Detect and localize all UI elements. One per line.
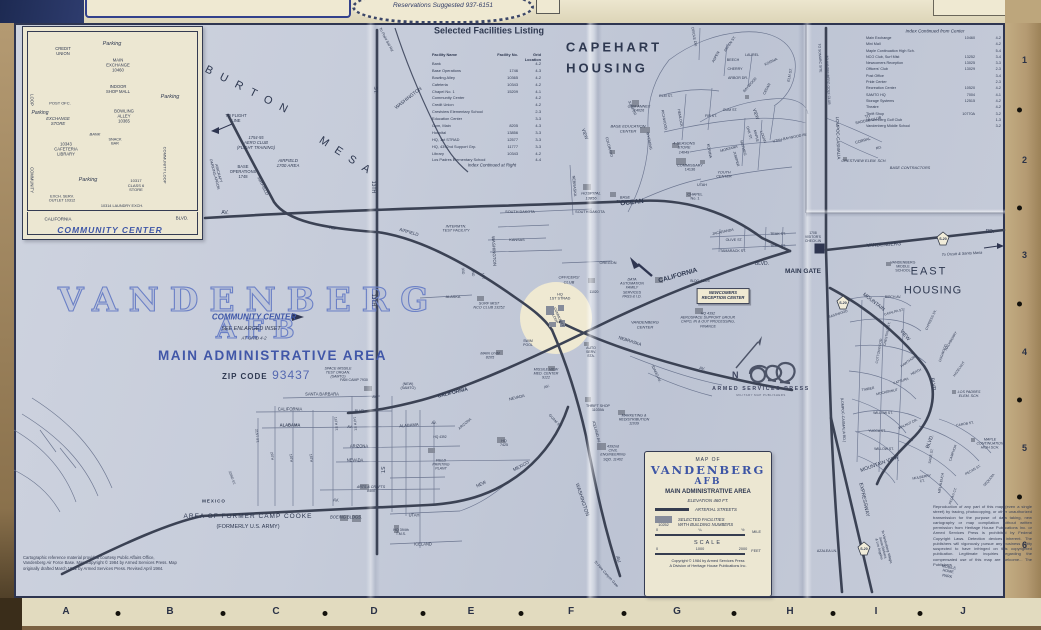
community-center-callout: COMMUNITY CENTER: [212, 312, 296, 321]
colorado: COLORADO: [604, 137, 613, 158]
intermtn: INTERMTN. TEST FACILITY: [442, 225, 469, 234]
airfield-rd-2: RD.: [329, 225, 337, 232]
main-gym: MAIN GYM 8205: [480, 352, 499, 361]
yucca-st: YUCCA ST.: [868, 429, 886, 433]
lompoc-casmalia-n: LOMPOC-CASMALIA: [835, 117, 842, 160]
mexico-av: MEXICO: [202, 498, 226, 503]
grid-dot: [622, 611, 627, 616]
grid-number-4: 4: [1022, 347, 1027, 357]
teak-st-1: TEAK ST.: [770, 232, 786, 236]
gum-st: GUM ST.: [723, 108, 738, 112]
nevada-st: NEVADA: [347, 459, 364, 464]
olive-st: OLIVE ST.: [726, 238, 743, 242]
grid-number-6: 6: [1022, 540, 1027, 550]
basswood: BASSWOOD: [828, 309, 848, 319]
alabama-av: ALABAMA: [280, 424, 301, 429]
16th-st: 16TH ST.: [333, 417, 338, 431]
cypress: CYPRESS ST.: [925, 309, 938, 331]
washington-av-mid: WASHINGTON: [491, 236, 498, 266]
hawthorn: HAWTHORN: [900, 354, 919, 369]
katsura: KATSURA: [893, 377, 909, 386]
inset-parking-top: Parking: [103, 41, 122, 47]
alabama-av2: AV.: [347, 425, 353, 429]
to-flight-line: TO FLIGHT LINE: [225, 114, 246, 124]
aero-club: 1754-55 AERO CLUB (FLIGHT TRAINING): [237, 136, 275, 150]
new-mexico-2: MEXICO: [512, 460, 530, 473]
gym-annex: GYM ANNEX 14026: [628, 105, 651, 114]
aircraft-apron: AIRCRAFT PARKING APRON: [208, 158, 225, 190]
grid-number-3: 3: [1022, 250, 1027, 260]
base-education: BASE EDUCATION CENTER: [610, 124, 645, 133]
s20-shield-3: S-20: [860, 547, 868, 551]
grid-letter-C: C: [272, 606, 279, 617]
nevada-av-up2: AV.: [544, 384, 551, 390]
vandenberg-rd: VANDENBERG: [867, 242, 902, 250]
crestview: CRESTVIEW ELEM. SCH.: [841, 159, 886, 163]
to-golf-club: TO VANDENBERG GOLF CLUB: [825, 55, 832, 104]
hq-4392-small: HQ 4392: [433, 436, 446, 440]
map-label-layer: CREDIT UNIONParkingMAIN EXCHANGE 10460IN…: [0, 0, 1041, 630]
california-blvd-label: BLVD.: [755, 262, 769, 268]
grid-letter-G: G: [673, 606, 681, 617]
grid-dot: [1017, 302, 1022, 307]
hq-1st-strad: HQ 1ST STRAD: [550, 293, 571, 302]
jacaranda: JACARANDA: [712, 228, 734, 237]
auto-serv: AUTO SERV. STA.: [586, 346, 596, 358]
oregon: OREGON: [600, 261, 617, 265]
nutmeg: NUTMEG: [739, 140, 747, 156]
teak-st-2: TEAK ST.: [770, 244, 786, 248]
facilities-note: Index Continued at Right: [468, 162, 516, 167]
nebraska-av-2: AV.: [699, 366, 706, 372]
expressway: EXPRESSWAY: [857, 483, 870, 518]
lompoc-casmalia-mid: (LOMPOC-CASMALIA RD.): [840, 398, 847, 443]
3rd-st: 3RD: [461, 267, 466, 274]
walnut-dr: WALNUT DR.: [898, 418, 919, 430]
grid-letter-I: I: [875, 606, 878, 617]
timber: TIMBER: [861, 386, 874, 392]
base-theatre: BASE THEATRE: [616, 196, 633, 205]
grid-letter-B: B: [166, 606, 173, 617]
aerospace-group: HQ 4392 AEROSPACE SUPPORT GROUP, CHPO, I…: [680, 312, 735, 329]
inset-indoor-mall: INDOOR SHOP MALL: [106, 85, 130, 95]
south-dakota-2: SOUTH DAKOTA: [575, 210, 605, 214]
hq-7425: HQ 7425: [500, 439, 508, 447]
corral-rd2: RD.: [875, 145, 882, 151]
willow-st-2: WILLOW ST.: [874, 447, 894, 451]
grid-letter-F: F: [568, 606, 574, 617]
officers-club: OFFICERS' CLUB: [559, 275, 580, 284]
hemlock: HEMLOCK: [676, 109, 683, 127]
alabama-e: ALABAMA: [399, 423, 419, 429]
utah-s: UTAH: [409, 514, 420, 519]
circle-dr: CIRCLE DR.: [690, 27, 698, 48]
cedar: CEDAR: [762, 82, 772, 95]
23rd-st: 23RD ST.: [228, 470, 237, 485]
commissary: COMMISSARY 14136: [677, 164, 703, 173]
inset-community: COMMUNITY: [29, 167, 34, 193]
camp-cooke-1: AREA OF FORMER CAMP COOKE: [184, 513, 313, 521]
21st-st: 21ST ST.: [254, 429, 259, 443]
community-loop-circle: COMMUNITY LOOP: [549, 307, 565, 329]
grid-dot: [732, 611, 737, 616]
cherry: CHERRY: [727, 67, 742, 71]
willow-st-1: WILLOW ST.: [873, 411, 893, 415]
kansas: KANSAS: [509, 238, 524, 242]
oak-st: OAK ST.: [745, 126, 753, 140]
civil-engineering: 4392nd CIVIL ENGINEERING SQD. 11402: [600, 445, 625, 462]
grid-dot: [116, 611, 121, 616]
19th-st: 19TH: [289, 454, 294, 463]
1st-st: 1ST: [481, 273, 486, 280]
fir-st: FIR ST.: [705, 114, 717, 118]
inset-loop: LOOP: [29, 94, 34, 106]
grid-dot: [323, 611, 328, 616]
vandenberg-center: VANDENBERG CENTER: [631, 320, 659, 329]
east-housing-2: HOUSING: [904, 285, 962, 298]
camp-cooke-2: (FORMERLY U.S. ARMY): [216, 524, 279, 530]
sage-st: SAGE ST.: [928, 448, 935, 464]
birch-av: BIRCH AV.: [885, 295, 901, 299]
inset-community-loop: COMMUNITY LOOP: [162, 147, 167, 184]
2nd-st: 2ND: [471, 269, 476, 276]
grid-dot: [519, 611, 524, 616]
nebraska-vert: NEBRASKA: [571, 176, 577, 197]
carob-st: CAROB ST.: [956, 420, 974, 427]
grid-number-5: 5: [1022, 443, 1027, 453]
18th-st: 18TH: [309, 454, 314, 463]
visitors-checkin: 1708 VISITOR'S CHECK-IN: [805, 232, 821, 244]
inset-bank: BANK: [90, 133, 101, 138]
at-grid: AT GRID 4-2: [241, 335, 266, 340]
inset-blvd: BLVD.: [176, 215, 189, 220]
iceland-s: ICELAND: [414, 543, 432, 548]
inset-snack-bar: SNACK BAR: [108, 138, 121, 147]
grid-dot: [1017, 495, 1022, 500]
dogwood: DOGWOOD: [938, 344, 948, 363]
heath: HEATH: [910, 368, 922, 376]
california-st: CALIFORNIA: [278, 408, 303, 413]
thirteenth-st-2: 13TH: [369, 294, 375, 306]
14th-st: 14TH ST.: [352, 417, 357, 431]
inset-post-office: POST OFC.: [49, 102, 70, 107]
mexico-av2: AV.: [333, 497, 339, 502]
swim-pool: SWIM POOL: [523, 339, 533, 347]
richwood: RICHWOOD: [660, 110, 668, 131]
map-photo: Reservations Suggested 937-6151: [0, 0, 1041, 630]
capehart-2: HOUSING: [566, 60, 648, 75]
see-inset: SEE ENLARGED INSET: [221, 326, 280, 332]
burton: BURTON: [202, 64, 297, 121]
nebraska-av: NEBRASKA: [618, 335, 642, 347]
alabama-e2: AV.: [431, 421, 436, 425]
tamarack-st: TAMARACK ST.: [720, 249, 746, 253]
thrift-shop: THRIFT SHOP 11039A: [586, 404, 610, 412]
samto-hq: SPACE MISSILE TEST ORGAN. (SAMTO): [324, 367, 351, 380]
los-padres: LOS PADRES ELEM. SCH.: [958, 390, 981, 398]
chapel-no1: CHAPEL No. 1: [687, 193, 702, 202]
california-sw: CALIFORNIA: [437, 387, 468, 400]
elm-st-1: ELM ST.: [787, 68, 794, 82]
pecan-st: PECAN ST.: [964, 464, 981, 476]
inset-exchange-store: EXCHANGE STORE: [46, 117, 70, 127]
data-automation: DATA AUTOMATION FAMILY SERVICES PASS & I…: [620, 277, 644, 298]
melaleuca: MELALEUCA: [937, 473, 945, 494]
capehart-1: CAPEHART: [566, 39, 662, 54]
st-label: ST.: [371, 86, 377, 93]
pecan-ct: PECAN CT.: [948, 487, 958, 505]
maple-high: MAPLE CONTINUATION HIGH SCH.: [976, 438, 1003, 451]
grid-dot: [221, 611, 226, 616]
grid-dot: [1017, 206, 1022, 211]
logan: LOGAN: [759, 130, 767, 143]
airfield-area: AIRFIELD 1700 AREA: [277, 158, 300, 168]
mockernut: MOCKERNUT: [876, 388, 898, 396]
inset-credit-union: CREDIT UNION: [55, 47, 71, 57]
south-dakota-1: SOUTH DAKOTA: [505, 210, 535, 214]
mountain-view-s2: BLVD.: [926, 434, 936, 449]
grid-number-2: 2: [1022, 155, 1027, 165]
grid-dot: [918, 611, 923, 616]
13th-st-s: ST.: [378, 466, 384, 473]
utah-st: UTAH: [697, 183, 707, 187]
arbor-dr: ARBOR DR.: [728, 76, 748, 80]
hazelnut: HAZELNUT: [952, 361, 966, 378]
arts-crafts: ARTS & CRAFTS 8400: [357, 485, 385, 493]
to-vdb-village: To Vandenberg Village, Santa Barbara, & …: [873, 530, 894, 567]
inset-exch-outlet: EXCH. SERV. OUTLET 10312: [49, 195, 76, 204]
arizona-e: ARIZONA: [458, 417, 473, 431]
20th-st: 20TH: [270, 452, 275, 461]
mountain-view-2: VIEW: [898, 329, 911, 343]
korina-2: KORINA: [706, 143, 713, 158]
hospital: HOSPITAL 13856: [581, 191, 601, 200]
to-orcutt: To Orcutt & Santa Maria: [942, 251, 983, 258]
bldg-11020: 11020: [590, 291, 599, 295]
korina-1: KORINA: [764, 57, 778, 67]
california-blvd2: BLVD.: [355, 409, 366, 413]
elm-st-2: ELM ST.: [659, 94, 673, 98]
inset-california: CALIFORNIA: [44, 216, 71, 221]
wyoming: WYOMING: [645, 132, 653, 150]
mountain-view-1: MOUNTAIN: [861, 293, 885, 314]
idaho-av: IDAHO AV.: [650, 365, 662, 384]
surf-mist: SURF MIST NCO CLUB 13252: [473, 302, 504, 311]
grid-letter-J: J: [960, 606, 966, 617]
missile-view-med: MISSILE VIEW MED. CENTER 9122: [534, 368, 559, 381]
grid-letter-H: H: [786, 606, 793, 617]
santa-barbara-av: SANTA BARBARA: [305, 393, 339, 398]
grid-number-1: 1: [1022, 55, 1027, 65]
ocean-av-w: AV.: [221, 211, 228, 217]
field-printing: FIELD PRINTING PLANT: [432, 459, 449, 472]
mountain-view-3: BLVD.: [928, 378, 936, 393]
chestnut: CHESTNUT ST.: [883, 322, 892, 347]
juniper-2: JUNIPER: [732, 151, 740, 167]
inset-cafeteria: 10343 CAFETERIA LIBRARY: [54, 143, 78, 158]
grid-dot: [1017, 108, 1022, 113]
aspen: ASPEN: [711, 51, 720, 64]
base-operations: BASE OPERATIONS 1748: [230, 165, 257, 179]
washington-st-top: WASHINGTON: [394, 87, 423, 112]
inset-laundry: 10314 LAUNDRY EXCH.: [101, 204, 143, 208]
to-point-sal: To Point Sal Rd.: [378, 27, 395, 53]
to-somarc: TO SOMARC SITE: [817, 43, 823, 72]
arizona-st: ARIZONA: [350, 445, 368, 450]
laurel: LAUREL: [745, 53, 759, 57]
alaska: ALASKA: [446, 295, 461, 299]
view-2: VIEW: [581, 128, 590, 140]
thirteenth-st: 13TH: [369, 181, 375, 193]
camphor: CAMPHOR: [948, 444, 958, 462]
inset-main-exchange: MAIN EXCHANGE 10460: [106, 59, 130, 74]
beech: BEECH: [727, 58, 739, 62]
east-housing-1: EAST: [911, 266, 948, 279]
four-seasons: 4-SEASONS STORE 14049: [673, 141, 695, 154]
mulberry: MULBERRY CT.: [912, 473, 932, 484]
nevada-av-up: NEVADA: [509, 394, 526, 402]
iceland-av: ICELAND AV.: [591, 420, 601, 443]
mobile-home-park: MOBILE HOME PARK: [940, 564, 956, 580]
aspen-st: ASPEN ST.: [723, 35, 737, 52]
washington-av-s: WASHINGTON: [573, 483, 589, 517]
azalea-ln: AZALEA LN.: [817, 549, 837, 553]
santa-barbara-av2: AV.: [372, 395, 378, 399]
guam-st: GUAM ST.: [548, 413, 563, 428]
grid-letter-A: A: [62, 606, 69, 617]
inset-title: COMMUNITY CENTER: [57, 225, 163, 235]
grid-letter-E: E: [468, 606, 475, 617]
grid-dot: [421, 611, 426, 616]
airfield-rd-3: AIRFIELD: [399, 227, 419, 237]
grid-dot: [831, 611, 836, 616]
mesa: MESA: [316, 134, 379, 181]
grid-letter-D: D: [370, 606, 377, 617]
airfield-rd-1: AIRFIELD: [256, 176, 270, 196]
washington-av-s2: AV.: [613, 556, 621, 565]
inset-parking-bottom: Parking: [79, 177, 98, 183]
new-samto: (NEW) (SAMTO): [400, 382, 415, 390]
marketing: MARKETING & REDISTRIBUTION 11039: [619, 414, 649, 427]
boeing-bldgs: BOEING BLDGS.: [330, 516, 362, 521]
bldg-13025: BLDG. 13025: [690, 280, 709, 284]
s20-shield-2: S-20: [839, 301, 847, 305]
grid-dot: [1017, 398, 1022, 403]
hq-394: HQ 394th T.M.S.: [393, 528, 408, 536]
new-mexico-1: NEW: [475, 479, 486, 488]
youth-center: YOUTH CENTER: [716, 171, 732, 180]
cottonwood: COTTONWOOD: [875, 338, 883, 364]
mountain-view-s1: MOUNTAIN VIEW: [860, 455, 900, 474]
inset-bowling: BOWLING ALLEY 10365: [114, 110, 134, 125]
vandenberg-rd2: RD.: [986, 230, 995, 236]
base-contractors: BASE CONTRACTORS: [890, 166, 930, 170]
newcomers-box: NEWCOMERS RECEPTION CENTER: [697, 288, 750, 304]
main-gate: MAIN GATE: [785, 268, 821, 276]
sequoia: SEQUOIA: [982, 473, 995, 487]
s20-shield-1: S-20: [939, 237, 947, 241]
utah-baywood: UTAH-BAYWOOD AV.: [772, 132, 807, 143]
catalpa: CATALPA ST.: [884, 307, 905, 316]
view-1: VIEW: [752, 108, 761, 120]
inset-class6: 10317 CLASS 6 STORE: [128, 179, 144, 193]
inset-parking-right: Parking: [161, 94, 180, 100]
corral-rd: CORRAL: [855, 137, 871, 145]
to-saddle-club: TO SADDLE CLUB: [854, 112, 882, 126]
